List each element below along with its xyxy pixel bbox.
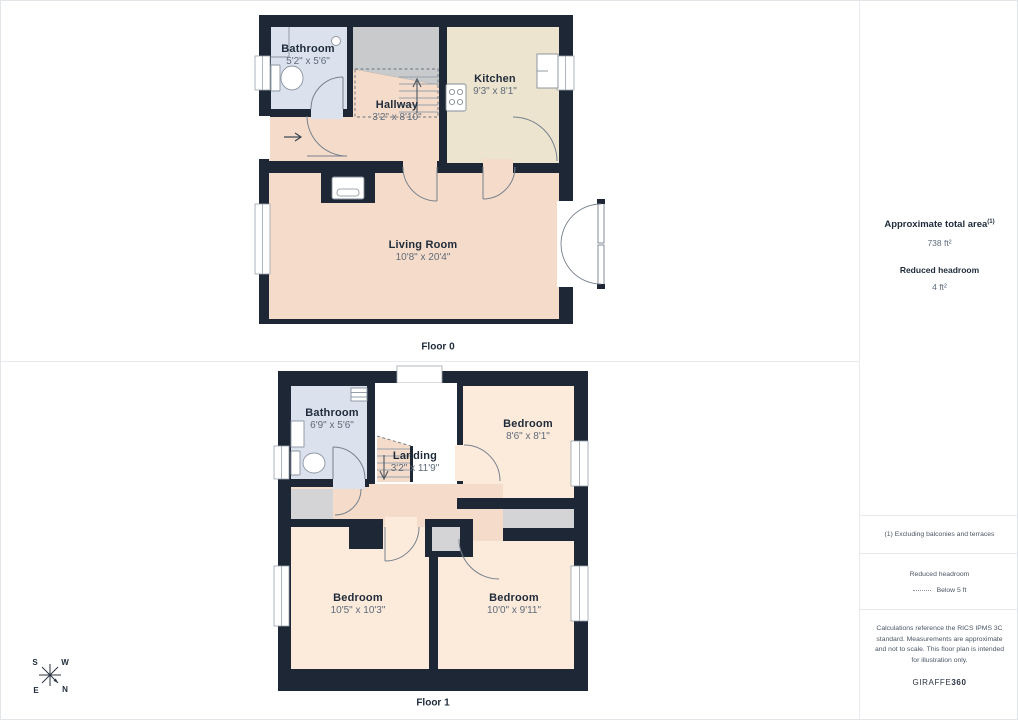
info-sidebar: Approximate total area(1) 738 ft² Reduce…	[859, 1, 1018, 720]
reduced-headroom-label: Reduced headroom	[860, 265, 1018, 275]
room-label-landing: Landing 3'2" x 11'9"	[391, 450, 440, 474]
total-area-block: Approximate total area(1) 738 ft² Reduce…	[860, 219, 1018, 292]
room-label-kitchen: Kitchen 9'3" x 8'1"	[473, 73, 517, 97]
closet-right	[503, 509, 574, 528]
room-label-bathroom-f1: Bathroom 6'9" x 5'6"	[305, 407, 359, 431]
floor0-plan	[1, 1, 859, 361]
sidebar-divider	[860, 553, 1018, 554]
stove-icon	[446, 84, 466, 111]
room-label-hallway: Hallway 3'2" x 8'10"	[372, 99, 421, 123]
room-label-bedroom-2: Bedroom 10'5" x 10'3"	[331, 592, 386, 616]
closet-center	[432, 527, 460, 551]
bedroom-tr-floor	[463, 386, 574, 498]
legend-label: Reduced headroom	[860, 571, 1018, 578]
floor1-caption: Floor 1	[416, 698, 449, 709]
legend-block: Reduced headroom Below 5 ft	[860, 571, 1018, 594]
compass-s: S	[32, 658, 38, 667]
compass-e: E	[33, 686, 39, 695]
total-area-label: Approximate total area(1)	[860, 219, 1018, 230]
room-label-living-room: Living Room 10'8" x 20'4"	[389, 239, 458, 263]
compass-w: W	[61, 658, 69, 667]
room-label-bathroom-f0: Bathroom 5'2" x 5'6"	[281, 43, 335, 67]
sidebar-divider	[860, 515, 1018, 516]
floor1-plan	[1, 361, 859, 720]
room-label-bedroom-1: Bedroom 8'6" x 8'1"	[503, 418, 553, 442]
floor0-caption: Floor 0	[421, 342, 454, 353]
entry-door-opening	[255, 116, 270, 159]
disclaimer-text: Calculations reference the RICS IPMS 3C …	[860, 624, 1018, 666]
chimney	[397, 366, 442, 383]
disclaimer-block: Calculations reference the RICS IPMS 3C …	[860, 624, 1018, 687]
compass-rose: S W E N	[19, 645, 81, 707]
total-area-value: 738 ft²	[860, 238, 1018, 248]
brand-logo: GIRAFFE360	[860, 678, 1018, 687]
floor0-hallway-floor	[269, 117, 439, 161]
french-doors-icon	[557, 199, 605, 289]
floorplan-canvas: Bathroom 5'2" x 5'6" Hallway 3'2" x 8'10…	[1, 1, 859, 720]
counter-icon	[537, 54, 558, 88]
sidebar-divider	[860, 609, 1018, 610]
compass-n: N	[62, 685, 68, 694]
dotted-line-icon	[913, 590, 931, 591]
floorplan-page: Bathroom 5'2" x 5'6" Hallway 3'2" x 8'10…	[0, 0, 1018, 720]
closet-left	[291, 489, 333, 519]
floor-divider	[1, 361, 859, 362]
reduced-headroom-value: 4 ft²	[860, 282, 1018, 292]
footnote: (1) Excluding balconies and terraces	[860, 531, 1018, 538]
room-label-bedroom-3: Bedroom 10'0" x 9'11"	[487, 592, 541, 616]
legend-row: Below 5 ft	[860, 587, 1018, 594]
